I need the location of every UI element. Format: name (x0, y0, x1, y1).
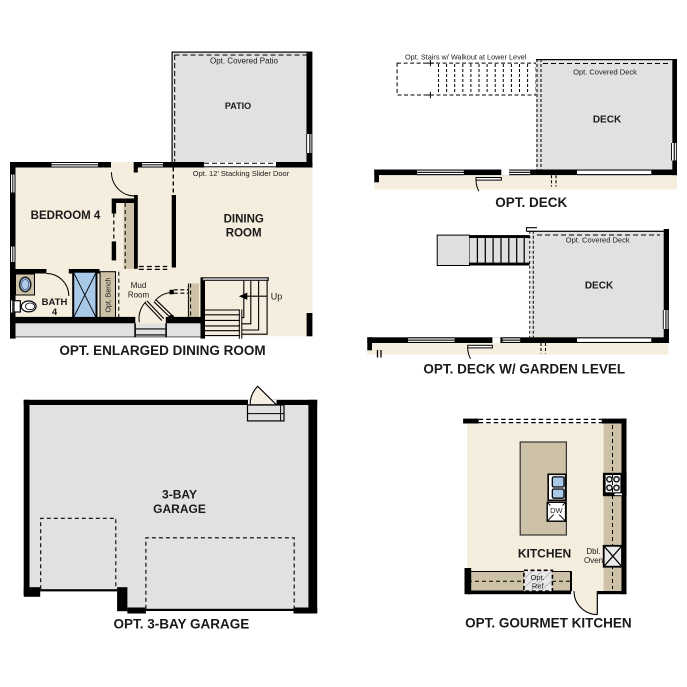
svg-text:DECK: DECK (593, 115, 622, 126)
svg-text:OPT. DECK W/ GARDEN LEVEL: OPT. DECK W/ GARDEN LEVEL (423, 362, 625, 377)
svg-text:Dbl.: Dbl. (586, 547, 600, 556)
svg-text:PATIO: PATIO (225, 101, 251, 111)
svg-text:Ref: Ref (532, 582, 545, 591)
svg-text:Opt. Covered Patio: Opt. Covered Patio (210, 57, 279, 66)
svg-text:DECK: DECK (585, 281, 614, 292)
svg-text:3-BAY: 3-BAY (162, 488, 197, 502)
svg-text:Oven: Oven (584, 556, 603, 565)
svg-text:DW: DW (550, 506, 563, 515)
svg-text:OPT. ENLARGED DINING ROOM: OPT. ENLARGED DINING ROOM (59, 343, 265, 358)
svg-text:GARAGE: GARAGE (153, 502, 206, 516)
svg-text:Opt. 12’ Stacking Slider Door: Opt. 12’ Stacking Slider Door (193, 169, 290, 178)
svg-text:Opt. Bench: Opt. Bench (106, 277, 113, 312)
svg-text:Opt. Stairs w/ Walkout at Lowe: Opt. Stairs w/ Walkout at Lower Level (405, 53, 527, 62)
svg-text:DINING: DINING (224, 214, 264, 226)
svg-text:BEDROOM 4: BEDROOM 4 (31, 210, 101, 222)
svg-text:Room: Room (128, 291, 150, 300)
svg-text:Mud: Mud (131, 281, 147, 290)
svg-text:OPT. 3-BAY GARAGE: OPT. 3-BAY GARAGE (114, 617, 250, 632)
svg-text:Up: Up (271, 291, 283, 301)
svg-text:KITCHEN: KITCHEN (518, 547, 571, 561)
svg-text:OPT. GOURMET KITCHEN: OPT. GOURMET KITCHEN (465, 616, 632, 631)
svg-text:Opt. Covered Deck: Opt. Covered Deck (573, 68, 637, 77)
svg-text:Opt. Covered Deck: Opt. Covered Deck (566, 236, 630, 245)
svg-text:Opt.: Opt. (531, 573, 545, 582)
svg-text:4: 4 (52, 307, 58, 318)
svg-text:OPT. DECK: OPT. DECK (495, 195, 567, 210)
svg-text:ROOM: ROOM (226, 228, 262, 240)
